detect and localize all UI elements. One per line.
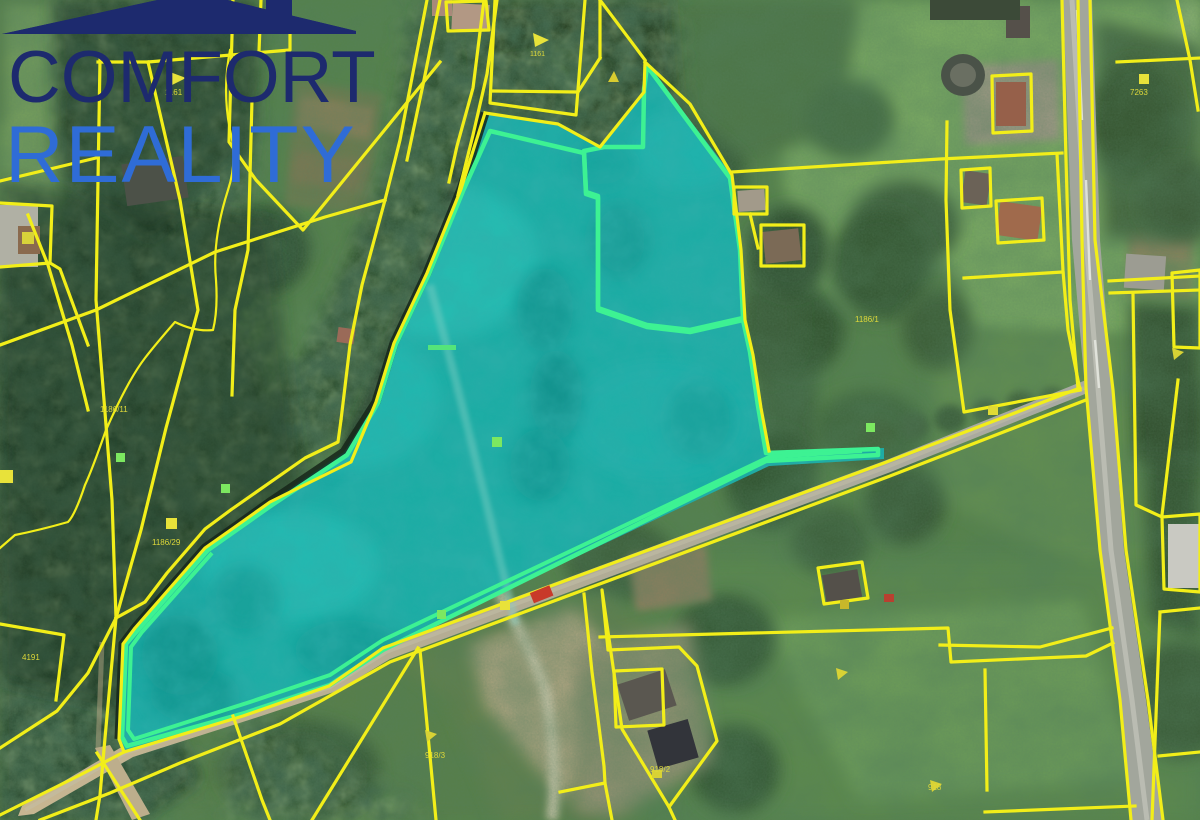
svg-text:918: 918: [928, 783, 942, 792]
svg-text:918/2: 918/2: [650, 765, 671, 774]
svg-text:7263: 7263: [1130, 88, 1148, 97]
svg-text:918/3: 918/3: [425, 751, 446, 760]
svg-text:REALITY: REALITY: [5, 110, 357, 200]
svg-text:1186/1: 1186/1: [855, 315, 879, 324]
svg-text:1186/29: 1186/29: [152, 538, 181, 547]
svg-text:COMFORT: COMFORT: [8, 37, 376, 118]
svg-text:1161: 1161: [530, 51, 545, 58]
svg-text:1186/11: 1186/11: [100, 405, 128, 414]
svg-text:4191: 4191: [22, 653, 40, 662]
